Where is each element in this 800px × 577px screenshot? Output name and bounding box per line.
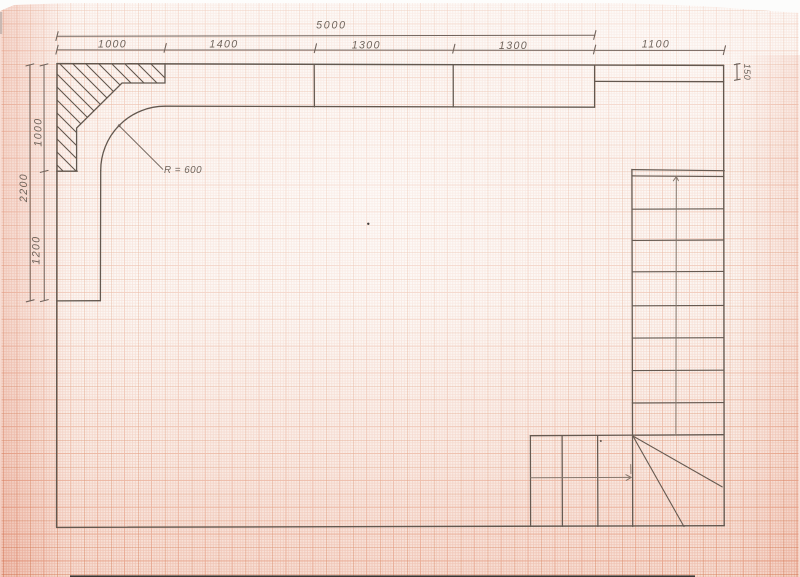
svg-text:R = 600: R = 600 xyxy=(164,165,202,176)
svg-text:5000: 5000 xyxy=(316,20,347,32)
svg-text:1400: 1400 xyxy=(209,38,238,50)
svg-text:1200: 1200 xyxy=(31,235,43,264)
svg-text:1000: 1000 xyxy=(98,39,127,51)
svg-text:1300: 1300 xyxy=(352,40,381,52)
svg-text:150: 150 xyxy=(742,64,752,81)
svg-text:1100: 1100 xyxy=(642,39,670,51)
svg-text:1000: 1000 xyxy=(33,117,45,146)
svg-text:2200: 2200 xyxy=(18,173,30,203)
svg-text:1300: 1300 xyxy=(499,40,528,52)
